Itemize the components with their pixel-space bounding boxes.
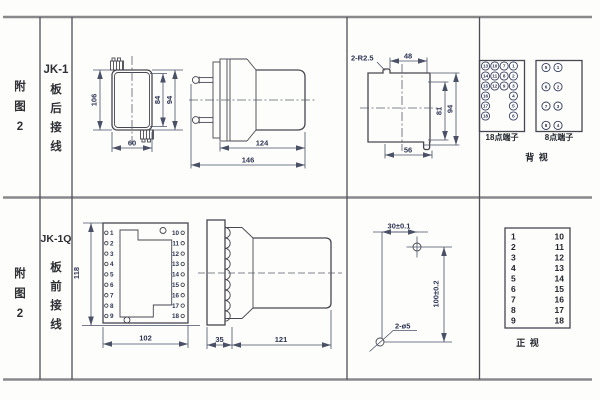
terminal-number: 3	[512, 84, 515, 89]
row1-figure-label: 附 图 2	[14, 79, 26, 133]
terminal-number: 6	[511, 284, 516, 294]
terminal-number: 12	[172, 251, 180, 258]
dim-label: 35	[215, 335, 223, 344]
radius-label: 2-R2.5	[351, 54, 374, 63]
dim-94: 94	[165, 70, 175, 130]
dim-label: 60	[128, 139, 136, 148]
mounting-hole	[124, 317, 130, 323]
fig-char: 附	[14, 266, 26, 280]
terminal-number: 4	[110, 261, 114, 268]
terminal-number: 11	[172, 240, 179, 247]
terminal-number: 1	[511, 232, 516, 242]
dim-horizontal-30: 30±0.1	[382, 222, 417, 233]
terminal-number: 6	[110, 282, 114, 289]
terminal-number: 15	[483, 84, 489, 89]
dim-label: 84	[153, 95, 162, 104]
front-terminals-right: 10 11 12 13 14 15 16 17 18	[172, 230, 184, 320]
flange-plate	[207, 220, 225, 325]
title-char: 接	[50, 120, 62, 134]
terminal-number: 7	[511, 295, 516, 305]
terminal-number-table: 1 2 3 4 5 6 7 8 9 10 11 12 13 14 15 16 1…	[505, 228, 570, 348]
mounting-hole	[160, 228, 166, 234]
terminal-number: 15	[555, 284, 565, 294]
dim-label: 81	[435, 107, 444, 115]
stud-lower	[192, 117, 213, 124]
fig-char: 2	[17, 308, 23, 320]
jk1-panel-cutout: 2-R2.5 48 81 94 56	[351, 52, 460, 159]
drawing-canvas: 附 图 2 JK-1 板 后 接 线	[0, 0, 600, 400]
top-terminal-studs	[111, 58, 124, 70]
terminal-number: 1	[557, 65, 560, 70]
dim-flange-35: 35	[207, 327, 232, 349]
terminal-number: 17	[555, 305, 565, 315]
bottom-terminal-studs	[141, 130, 154, 142]
dim-label: 124	[256, 139, 269, 148]
hole-callout: 2-ø5	[391, 322, 418, 334]
table-right-column: 10 11 12 13 14 15 16 17 18	[555, 232, 565, 326]
terminal-number: 1	[110, 230, 114, 237]
terminal-number: 12	[555, 253, 565, 263]
row1-model-label: JK-1 板 后 接 线	[44, 64, 70, 153]
terminal-number: 18	[483, 114, 489, 119]
dim-height-106: 106	[90, 70, 101, 130]
title-char: 线	[50, 317, 62, 331]
dim-vertical-100: 100±0.2	[432, 247, 445, 342]
terminal-number: 7	[545, 104, 548, 109]
terminal-number: 3	[110, 251, 114, 258]
terminal-number: 13	[172, 261, 180, 268]
terminal-number: 8	[511, 305, 516, 315]
dim-label: 100±0.2	[432, 280, 441, 307]
terminal-number: 8	[110, 303, 114, 310]
dim-body-124: 124	[220, 132, 305, 169]
title-char: 后	[50, 101, 62, 115]
terminal-number: 6	[545, 85, 548, 90]
title-char: 板	[50, 260, 62, 274]
terminal-number: 2	[511, 242, 516, 252]
terminal-number: 17	[483, 104, 489, 109]
dim-label: 106	[90, 94, 99, 107]
terminal-number: 5	[512, 104, 515, 109]
dim-body-121: 121	[232, 310, 331, 349]
terminal-number: 4	[557, 123, 560, 128]
radius-callout: 2-R2.5	[351, 54, 385, 71]
fig-char: 2	[17, 121, 23, 133]
jk1-side-view: 124 146	[189, 59, 316, 169]
terminal-number: 16	[555, 295, 565, 305]
dim-label: 48	[404, 52, 412, 61]
terminal-number: 14	[483, 74, 489, 79]
dim-label: 94	[446, 104, 455, 113]
fig-char: 附	[14, 79, 26, 93]
terminal-number: 2	[557, 85, 560, 90]
terminal-number: 7	[110, 292, 114, 299]
terminal-number: 5	[545, 65, 548, 70]
dim-label: 121	[275, 335, 288, 344]
terminal-number: 10	[172, 230, 180, 237]
terminal-number: 15	[172, 282, 180, 289]
title-char: 前	[50, 279, 62, 293]
jk1-front-view: 106 60 84 94	[90, 56, 184, 152]
terminal-number: 10	[555, 232, 565, 242]
terminal-number: 9	[511, 316, 516, 326]
holes-label: 2-ø5	[395, 322, 410, 331]
jk1q-front-view: 1 2 3 4 5 6 7 8 9 10 11 12 13 14 15 16 1…	[72, 223, 200, 348]
terminal-number: 9	[110, 313, 114, 320]
terminal-number: 2	[512, 74, 515, 79]
stud-upper	[192, 77, 213, 84]
cutout-outline	[368, 69, 430, 150]
title-char: 线	[50, 139, 62, 153]
terminal-number: 3	[557, 104, 560, 109]
terminal-number: 10	[492, 64, 498, 69]
terminal-number: 4	[512, 94, 515, 99]
dim-label: 146	[242, 156, 255, 165]
jk1q-side-view: 35 121	[198, 220, 342, 349]
terminal-number: 6	[512, 114, 515, 119]
terminal-block-8: 5 6 7 8 1 2 3 4 8点端子	[536, 61, 582, 143]
terminal-number: 13	[555, 263, 565, 273]
dim-label: 118	[72, 267, 81, 279]
dim-label: 56	[404, 146, 412, 155]
table-left-column: 1 2 3 4 5 6 7 8 9	[511, 232, 516, 326]
terminal-number: 2	[110, 240, 114, 247]
terminal-number: 1	[512, 64, 515, 69]
dim-label: 102	[139, 334, 152, 343]
fig-char: 图	[14, 99, 26, 113]
dim-top-48: 48	[390, 52, 427, 73]
hole-top	[407, 237, 453, 258]
terminal-number: 11	[555, 242, 564, 252]
terminal-number: 14	[555, 274, 565, 284]
terminal-number: 18	[555, 316, 565, 326]
terminal-number: 11	[492, 74, 497, 79]
terminal-number: 12	[492, 84, 498, 89]
dim-height-118: 118	[72, 223, 91, 326]
dim-label: 30±0.1	[388, 222, 411, 231]
drilling-plan: 30±0.1 100±0.2 2-ø5	[370, 222, 453, 352]
front-terminals-left: 1 2 3 4 5 6 7 8 9	[105, 230, 114, 320]
terminal-number: 14	[172, 272, 180, 279]
terminal-number: 4	[511, 263, 516, 273]
row2-model-label: JK-1Q 板 前 接 线	[41, 233, 72, 331]
terminal-number: 17	[172, 303, 180, 310]
title-char: 板	[50, 82, 62, 96]
title-char: 接	[50, 298, 62, 312]
terminal-number: 7	[503, 64, 506, 69]
terminal-number: 8	[503, 74, 506, 79]
dim-width-102: 102	[103, 325, 188, 348]
terminal-number: 3	[511, 253, 516, 263]
terminal-number: 16	[172, 292, 180, 299]
dim-width-60: 60	[112, 132, 152, 152]
front-view-label: 正 视	[516, 337, 540, 348]
rear-view-label: 背 视	[525, 152, 549, 163]
dim-bottom-56: 56	[385, 144, 432, 159]
terminal-number: 13	[483, 64, 489, 69]
model-name: JK-1	[44, 64, 70, 76]
terminal-number: 8	[545, 123, 548, 128]
model-name: JK-1Q	[41, 233, 72, 245]
terminal-block-18: 13 14 15 16 17 18 10 11 12 7 8 9 1 2 3 4…	[480, 61, 525, 143]
row2-figure-label: 附 图 2	[14, 266, 26, 320]
terminal-number: 16	[483, 94, 489, 99]
terminal-number: 9	[503, 84, 506, 89]
terminal-block-18-label: 18点端子	[486, 132, 519, 142]
terminal-bumps	[225, 228, 230, 322]
relay-dimension-drawing-page: 附 图 2 JK-1 板 后 接 线	[0, 0, 600, 400]
terminal-number: 5	[511, 274, 516, 284]
terminal-block-8-label: 8点端子	[545, 132, 573, 142]
inner-contour	[120, 230, 172, 317]
terminal-number: 5	[110, 272, 114, 279]
dim-total-146: 146	[191, 84, 305, 169]
dim-label: 94	[165, 95, 174, 104]
terminal-number: 18	[172, 313, 180, 320]
fig-char: 图	[14, 286, 26, 300]
